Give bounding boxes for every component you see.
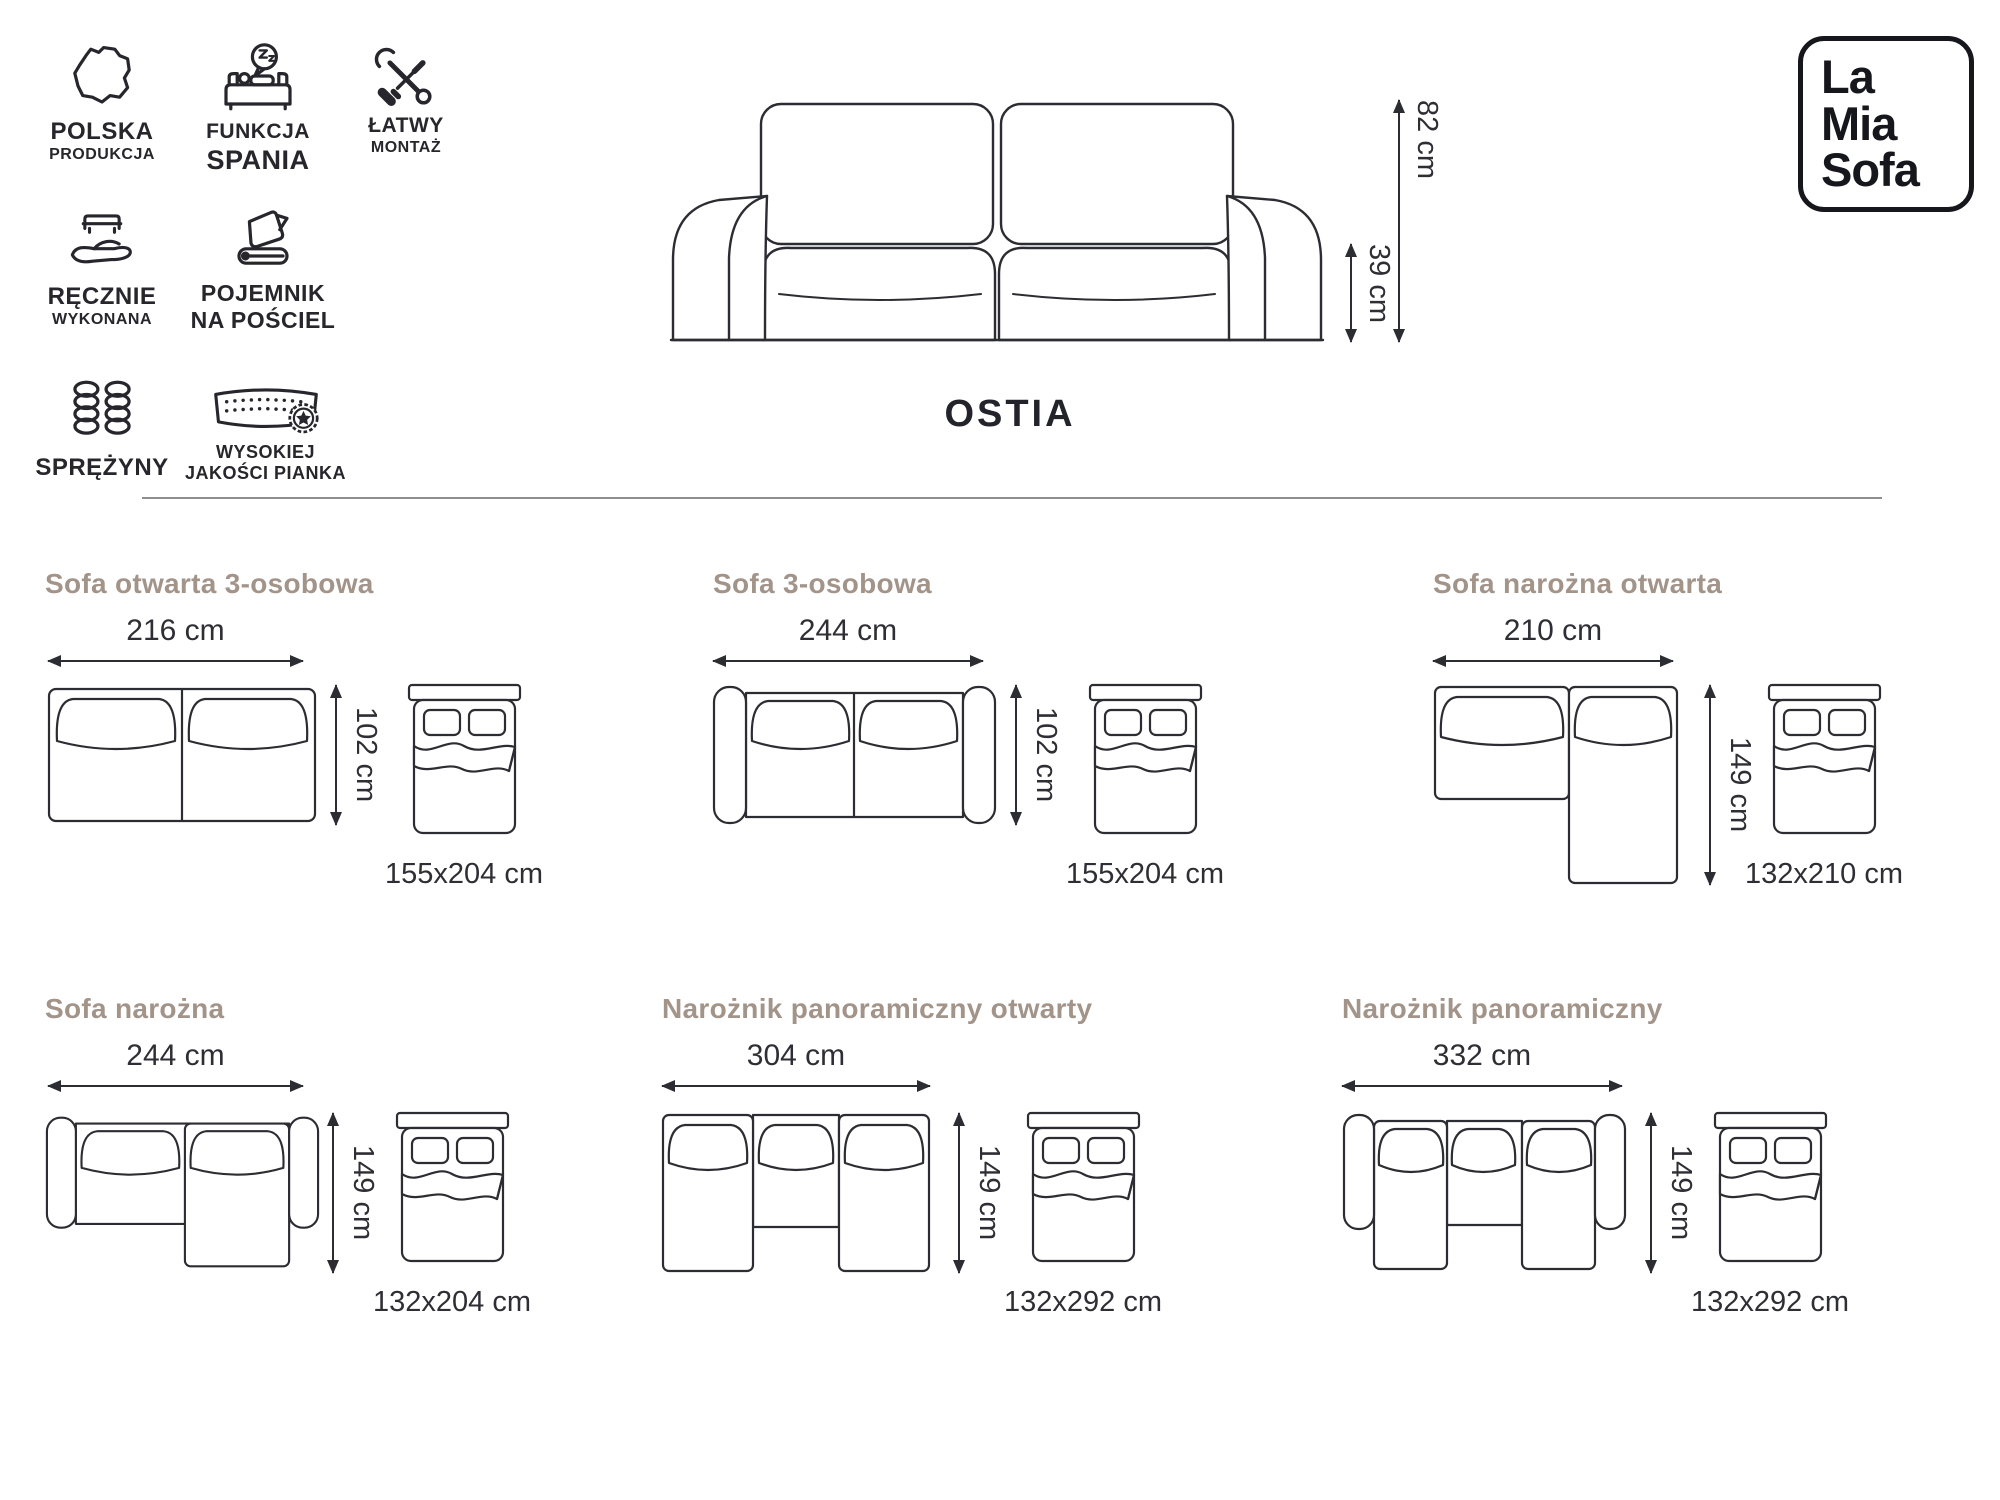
brand-logo-line: La: [1821, 54, 1969, 101]
depth-dimension-label: 102 cm: [349, 707, 382, 802]
depth-arrow: [1650, 1113, 1652, 1273]
bed-icon: [407, 683, 522, 835]
feature-funkcja-spania: FUNKCJA SPANIA: [193, 40, 323, 177]
sofa-topview-3seater: [712, 685, 997, 825]
sofa-front-illustration: [657, 92, 1337, 346]
bed-size-figure: 155x204 cm: [407, 683, 522, 891]
depth-dimension-label: 149 cm: [346, 1145, 379, 1240]
depth-arrow: [1709, 685, 1711, 885]
depth-arrow: [332, 1113, 334, 1273]
sofa-topview-corner: [45, 1113, 320, 1273]
sofa-topview-panoramic: [1342, 1113, 1627, 1273]
width-dimension: 210 cm: [1433, 614, 1673, 662]
depth-dimension: 149 cm: [958, 1113, 1005, 1273]
height-dimension: 82 cm: [1398, 100, 1443, 342]
bed-size-label: 155x204 cm: [349, 858, 579, 891]
depth-dimension: 102 cm: [1015, 685, 1062, 825]
variant-title: Sofa otwarta 3-osobowa: [45, 568, 374, 600]
sofa-topview-corner-open: [1433, 685, 1679, 885]
feature-pojemnik-na-posciel: POJEMNIK NA POŚCIEL: [190, 200, 336, 334]
bed-size-figure: 132x210 cm: [1767, 683, 1882, 891]
depth-arrow: [335, 685, 337, 825]
feature-label: RĘCZNIE: [48, 283, 157, 311]
brand-logo: La Mia Sofa: [1798, 36, 1974, 212]
width-dimension: 216 cm: [48, 614, 303, 662]
depth-dimension-label: 149 cm: [1664, 1145, 1697, 1240]
height-dimension-label: 82 cm: [1410, 100, 1443, 342]
width-dimension-label: 216 cm: [48, 614, 303, 648]
bed-size-figure: 155x204 cm: [1088, 683, 1203, 891]
variant-title: Sofa 3-osobowa: [713, 568, 932, 600]
bedding-container-icon: [222, 200, 304, 280]
width-dimension-label: 244 cm: [713, 614, 983, 648]
width-arrow: [662, 1085, 930, 1087]
feature-sublabel: MONTAŻ: [371, 139, 441, 158]
feature-label: POLSKA: [50, 118, 153, 146]
variant-title: Narożnik panoramiczny: [1342, 993, 1663, 1025]
variant-naroznik-panoramiczny-otwarty: Narożnik panoramiczny otwarty 304 cm 149…: [660, 985, 1280, 1385]
depth-dimension: 149 cm: [1650, 1113, 1697, 1273]
variant-naroznik-panoramiczny: Narożnik panoramiczny 332 cm 149 cm 132x: [1342, 985, 1962, 1385]
bed-size-label: 132x204 cm: [337, 1286, 567, 1319]
bed-size-label: 132x210 cm: [1709, 858, 1939, 891]
feature-sprezyny: SPRĘŻYNY: [40, 372, 164, 482]
sofa-topview-open-3seater: [47, 685, 317, 825]
width-dimension-label: 210 cm: [1433, 614, 1673, 648]
springs-icon: [58, 372, 146, 454]
bed-size-figure: 132x292 cm: [1026, 1111, 1141, 1319]
variant-sofa-otwarta-3-osobowa: Sofa otwarta 3-osobowa 216 cm 102 cm 155…: [40, 560, 660, 960]
width-arrow: [48, 660, 303, 662]
bed-icon: [1026, 1111, 1141, 1263]
width-dimension: 244 cm: [713, 614, 983, 662]
section-divider: [142, 497, 1882, 499]
depth-dimension-label: 149 cm: [972, 1145, 1005, 1240]
feature-label: POJEMNIK: [201, 280, 325, 307]
width-dimension: 304 cm: [662, 1039, 930, 1087]
width-arrow: [1342, 1085, 1622, 1087]
depth-dimension-label: 102 cm: [1029, 707, 1062, 802]
hand-made-icon: [59, 205, 145, 283]
brand-logo-line: Sofa: [1821, 147, 1969, 194]
depth-dimension: 149 cm: [332, 1113, 379, 1273]
variant-title: Sofa narożna: [45, 993, 224, 1025]
bed-size-figure: 132x292 cm: [1713, 1111, 1828, 1319]
depth-dimension: 102 cm: [335, 685, 382, 825]
width-arrow: [48, 1085, 303, 1087]
width-dimension-label: 244 cm: [48, 1039, 303, 1073]
feature-latwy-montaz: ŁATWY MONTAŻ: [352, 44, 460, 158]
product-title: OSTIA: [860, 393, 1160, 436]
feature-label: WYSOKIEJ: [216, 442, 315, 463]
seat-height-dimension-label: 39 cm: [1362, 244, 1395, 342]
feature-label: FUNKCJA: [206, 120, 310, 145]
bed-icon: [1088, 683, 1203, 835]
width-dimension: 244 cm: [48, 1039, 303, 1087]
feature-polska-produkcja: POLSKA PRODUKCJA: [40, 38, 164, 165]
width-dimension-label: 304 cm: [662, 1039, 930, 1073]
variant-sofa-3-osobowa: Sofa 3-osobowa 244 cm 102 cm 155x204 cm: [690, 560, 1310, 960]
feature-sublabel: JAKOŚCI PIANKA: [185, 463, 346, 484]
bed-icon: [395, 1111, 510, 1263]
bed-size-label: 155x204 cm: [1030, 858, 1260, 891]
variant-title: Narożnik panoramiczny otwarty: [662, 993, 1092, 1025]
variant-title: Sofa narożna otwarta: [1433, 568, 1722, 600]
variant-sofa-narozna-otwarta: Sofa narożna otwarta 210 cm 149 cm 132x2…: [1433, 560, 2000, 960]
feature-sublabel: WYKONANA: [52, 311, 152, 330]
bed-icon: [1767, 683, 1882, 835]
width-arrow: [1433, 660, 1673, 662]
depth-arrow: [958, 1113, 960, 1273]
feature-sublabel: SPANIA: [206, 145, 309, 177]
feature-sublabel: PRODUKCJA: [49, 146, 155, 165]
foam-quality-icon: [203, 378, 329, 442]
depth-dimension-label: 149 cm: [1723, 737, 1756, 832]
sleep-function-icon: [216, 40, 300, 120]
feature-label: SPRĘŻYNY: [35, 454, 168, 482]
tools-icon: [371, 44, 441, 114]
sofa-topview-panoramic-open: [661, 1113, 931, 1273]
width-arrow: [713, 660, 983, 662]
height-arrow: [1398, 100, 1400, 342]
bed-size-figure: 132x204 cm: [395, 1111, 510, 1319]
brand-logo-line: Mia: [1821, 101, 1969, 148]
feature-wysokiej-jakosci-pianka: WYSOKIEJ JAKOŚCI PIANKA: [178, 378, 353, 484]
poland-map-icon: [61, 38, 143, 118]
bed-icon: [1713, 1111, 1828, 1263]
seat-height-arrow: [1350, 244, 1352, 342]
bed-size-label: 132x292 cm: [968, 1286, 1198, 1319]
product-spec-sheet: POLSKA PRODUKCJA FUNKCJA SPAN: [0, 0, 2000, 1500]
variant-sofa-narozna: Sofa narożna 244 cm 149 cm 132x204 cm: [40, 985, 660, 1385]
feature-sublabel: NA POŚCIEL: [191, 307, 336, 334]
width-dimension-label: 332 cm: [1342, 1039, 1622, 1073]
feature-label: ŁATWY: [368, 114, 444, 139]
bed-size-label: 132x292 cm: [1655, 1286, 1885, 1319]
width-dimension: 332 cm: [1342, 1039, 1622, 1087]
depth-arrow: [1015, 685, 1017, 825]
seat-height-dimension: 39 cm: [1350, 244, 1395, 342]
depth-dimension: 149 cm: [1709, 685, 1756, 885]
feature-recznie-wykonana: RĘCZNIE WYKONANA: [40, 205, 164, 330]
